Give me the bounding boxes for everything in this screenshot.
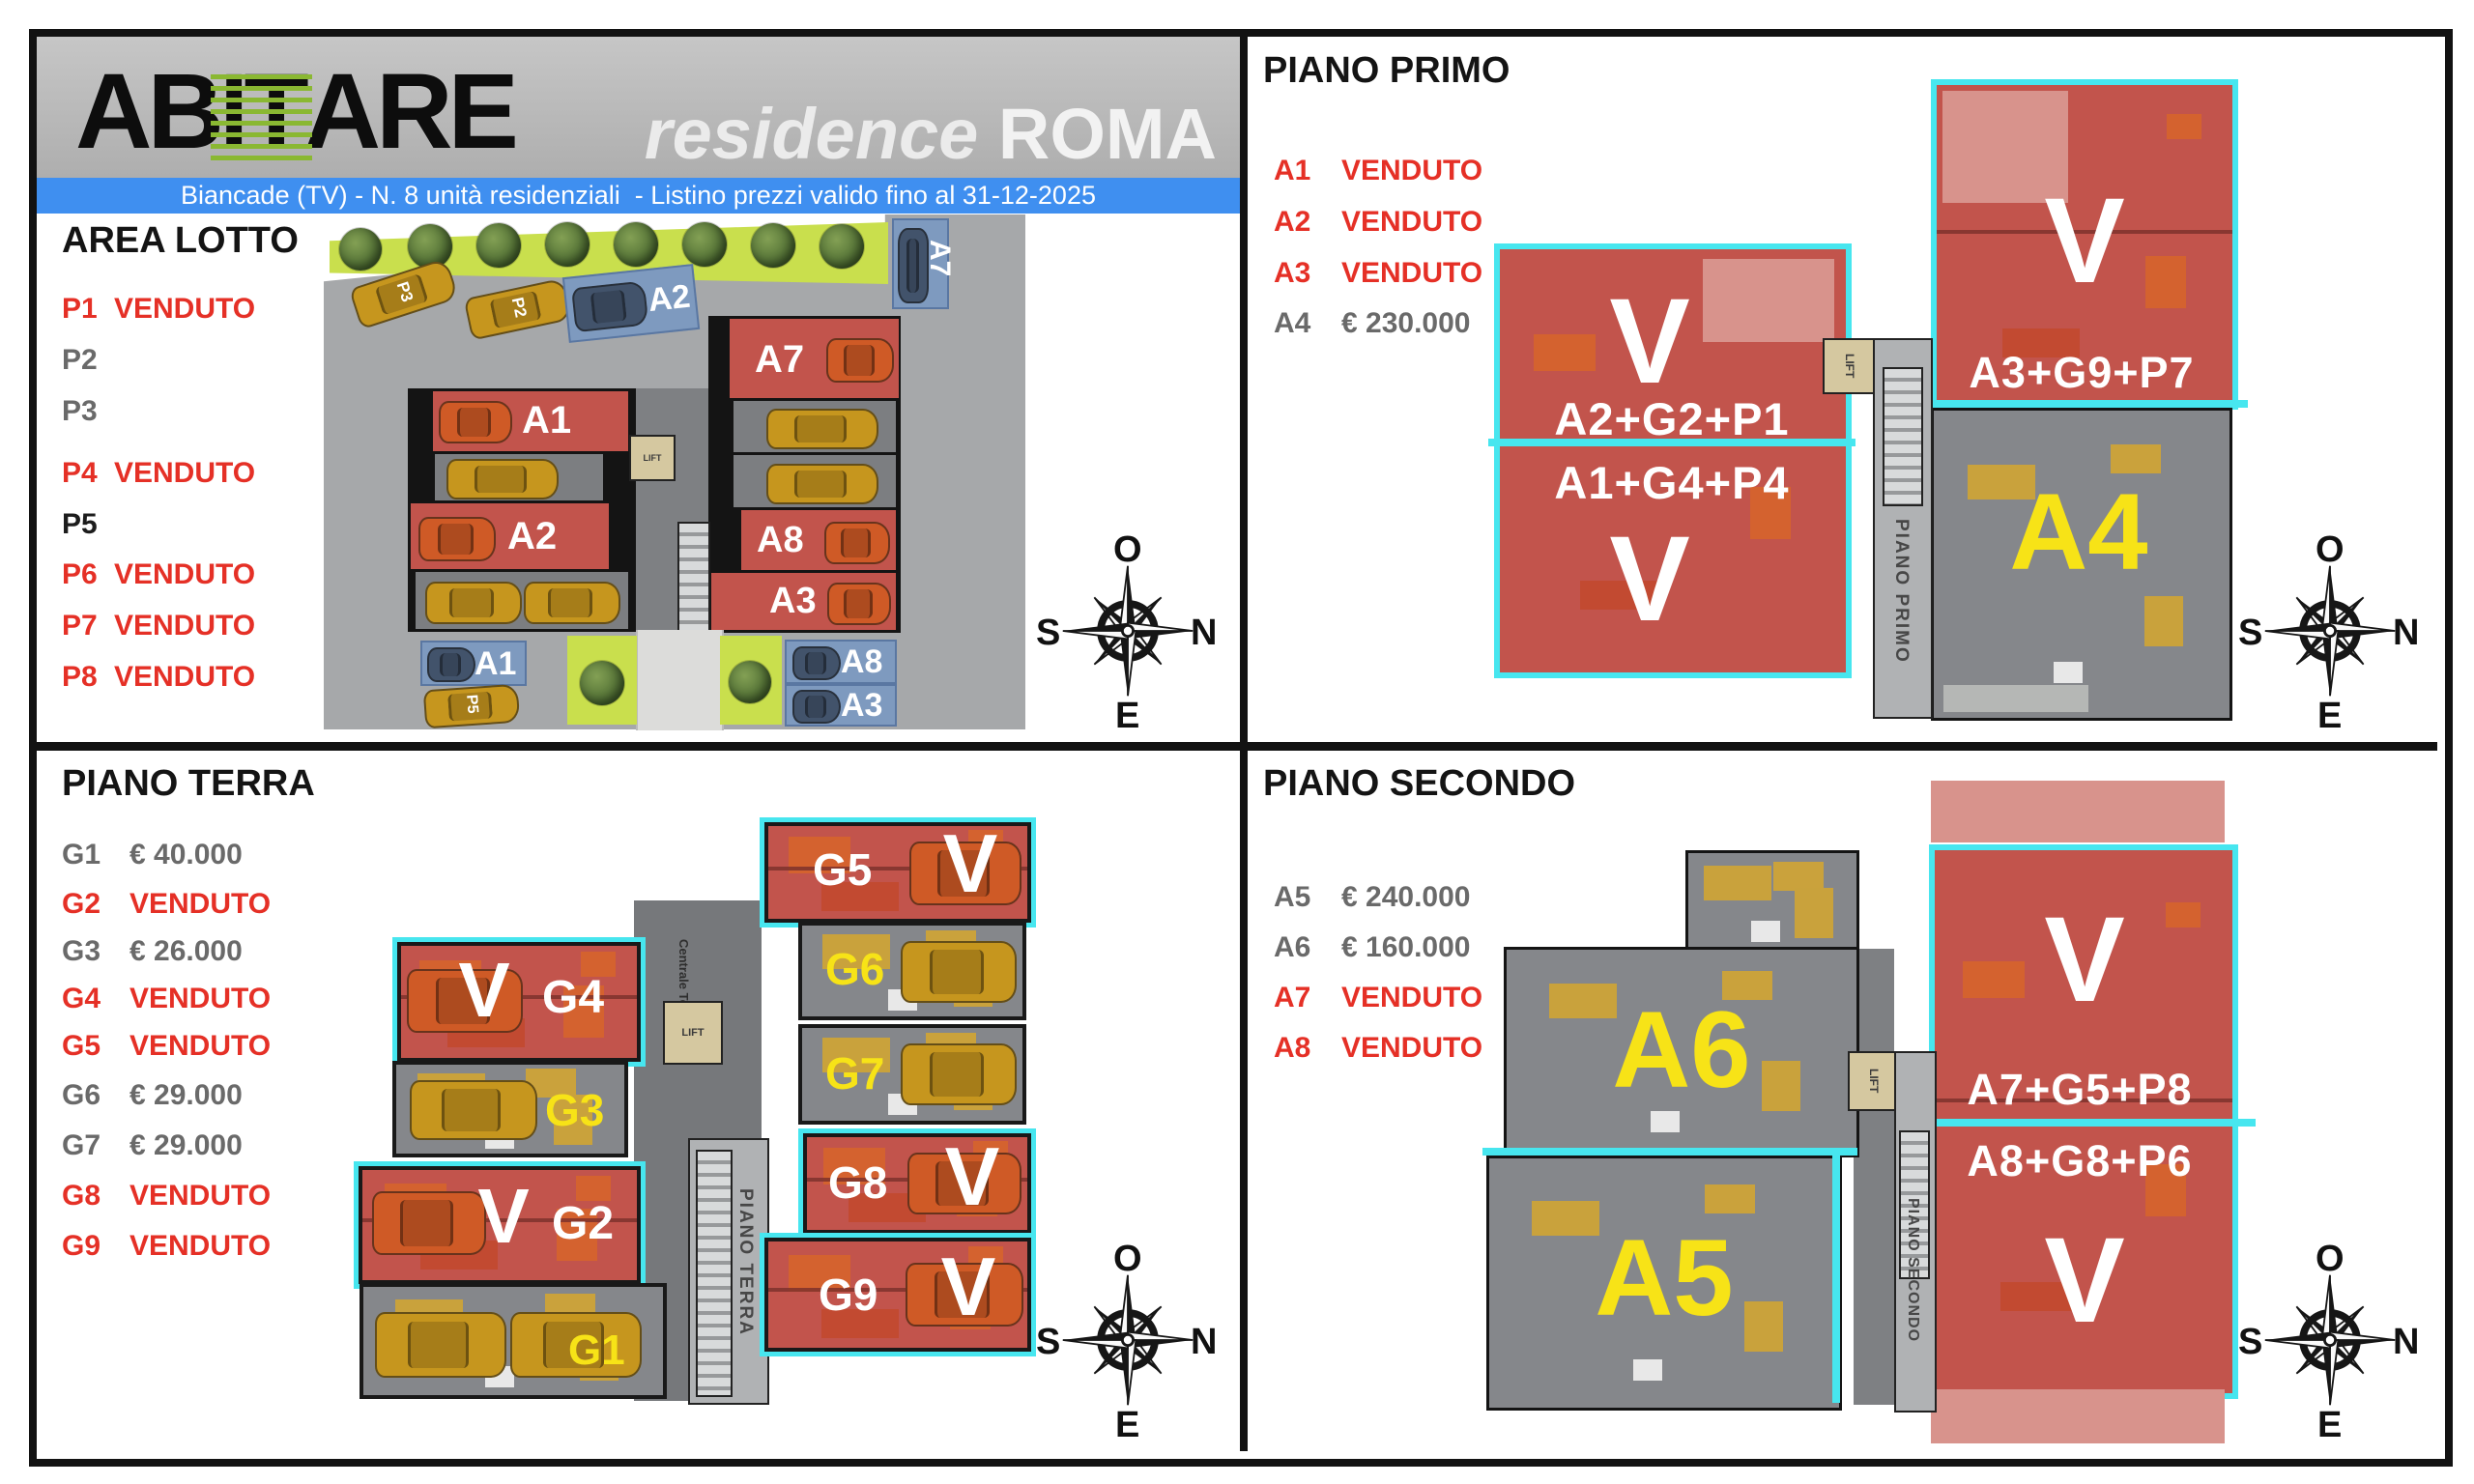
compass-rose-icon [2262, 1272, 2398, 1408]
combo-a3-g9-p7: A3+G9+P7 [1937, 348, 2227, 398]
row-g3: G3€ 26.000 [62, 935, 243, 968]
cyan-divider [1923, 400, 2248, 408]
garage-g6: G6 [798, 922, 1026, 1020]
row-p4: P4VENDUTO [62, 457, 255, 490]
residence-word: residence [645, 94, 998, 174]
car-icon [792, 690, 841, 724]
garage-label-g1: G1 [568, 1329, 625, 1372]
stairwell-label: PIANO PRIMO [1890, 519, 1912, 664]
lift: LIFT [663, 1001, 723, 1065]
unit-id: P6 [62, 558, 114, 591]
compass-south: S [1036, 1322, 1060, 1363]
sold-v-mark: V [917, 828, 1023, 902]
tree-icon [476, 223, 521, 268]
car-icon [826, 338, 894, 383]
location-banner: Biancade (TV) - N. 8 unità residenziali … [37, 178, 1240, 214]
row-a1: A1VENDUTO [1274, 155, 1482, 187]
unit-a8: A8 [741, 510, 896, 570]
sold-v-mark: V [2022, 906, 2147, 1015]
parking-label-a1: A1 [475, 645, 516, 683]
tree-icon [751, 223, 795, 268]
garage-g4: V G4 [392, 937, 646, 1067]
walkway [636, 630, 724, 730]
row-a8: A8VENDUTO [1274, 1032, 1482, 1065]
row-p2: P2 [62, 344, 114, 377]
unit-status: VENDUTO [114, 610, 255, 642]
stairwell: PIANO SECONDO [1894, 1051, 1937, 1413]
stairs [1883, 367, 1923, 506]
unit-status: € 29.000 [129, 1129, 243, 1162]
unit-label-a6: A6 [1507, 996, 1856, 1104]
garage-label-g3: G3 [545, 1088, 604, 1132]
lift-label: LIFT [1843, 354, 1856, 378]
roma-word: ROMA [998, 94, 1217, 174]
ps-right-apartments: V A7+G5+P8 A8+G8+P6 V [1929, 844, 2238, 1399]
sold-v-mark: V [436, 956, 532, 1025]
unit-status: VENDUTO [129, 888, 271, 921]
compass-east: E [2317, 696, 2342, 737]
row-p8: P8VENDUTO [62, 661, 255, 694]
car-label-p3: P3 [392, 279, 417, 304]
cyan-divider [1832, 1156, 1840, 1403]
row-g9: G9VENDUTO [62, 1230, 271, 1263]
unit-id: P8 [62, 661, 114, 694]
garage-row [435, 454, 603, 500]
garage-label-g8: G8 [828, 1160, 887, 1205]
garage-g1: G1 [360, 1283, 667, 1399]
garage-g8: G8 V [798, 1128, 1036, 1239]
row-a7: A7VENDUTO [1274, 982, 1482, 1014]
car-icon [766, 409, 878, 449]
piano-secondo-title: PIANO SECONDO [1263, 763, 1575, 805]
row-g1: G1€ 40.000 [62, 839, 243, 871]
tree-icon [580, 661, 624, 705]
parking-spot-a1: A1 [420, 641, 527, 686]
tree-icon [614, 222, 658, 267]
garage-g9: G9 V [760, 1233, 1036, 1356]
compass-north: N [1191, 613, 1217, 654]
sold-v-mark: V [1587, 526, 1712, 635]
car-icon [524, 582, 620, 624]
unit-status: VENDUTO [114, 457, 255, 490]
cyan-divider [1488, 439, 1855, 446]
tree-icon [729, 661, 771, 703]
unit-status: VENDUTO [1341, 206, 1482, 239]
garage-label-g5: G5 [813, 847, 872, 892]
car-icon [827, 583, 891, 625]
compass-west: O [1113, 529, 1142, 571]
stairs [677, 522, 710, 632]
unit-id: G3 [62, 935, 129, 968]
unit-id: P7 [62, 610, 114, 642]
tree-icon [682, 222, 727, 267]
unit-status: € 26.000 [129, 935, 243, 968]
pp-right-apartment-a3: V A3+G9+P7 [1931, 79, 2238, 410]
piano-primo-title: PIANO PRIMO [1263, 50, 1510, 92]
parking-spot-a8: A8 [785, 640, 897, 684]
row-a4: A4€ 230.000 [1274, 307, 1470, 340]
lift-label: LIFT [1867, 1069, 1881, 1093]
unit-status: VENDUTO [129, 983, 271, 1015]
compass-rose-icon [1060, 1272, 1195, 1408]
unit-label-a5: A5 [1489, 1224, 1839, 1332]
building-left-wing: A1 A2 [408, 388, 636, 632]
unit-label-a8: A8 [757, 522, 804, 558]
row-p6: P6VENDUTO [62, 558, 255, 591]
cyan-divider [1482, 1148, 1857, 1156]
unit-id: A6 [1274, 931, 1341, 964]
garage-label-g7: G7 [825, 1051, 884, 1096]
site-plan: A7 P3 P2 A2 AREA DI LOTTIZZAZIONE A1 A2 [324, 214, 1025, 729]
car-label-p5: P5 [462, 694, 480, 714]
unit-id: P4 [62, 457, 114, 490]
car-icon [446, 459, 559, 499]
tree-icon [339, 228, 382, 271]
unit-status: VENDUTO [1341, 982, 1482, 1014]
compass-west: O [2316, 529, 2345, 571]
parking-spot-a7: A7 [892, 218, 949, 309]
unit-id: A4 [1274, 307, 1341, 340]
row-p3: P3 [62, 395, 114, 428]
car-p5: P5 [423, 684, 521, 729]
unit-status: € 230.000 [1341, 307, 1470, 340]
garage-label-g9: G9 [819, 1272, 877, 1317]
compass-rose: O S N E [2238, 529, 2422, 732]
parking-label-a3: A3 [841, 687, 882, 725]
residence-title: residence ROMA [645, 93, 1217, 175]
unit-status: € 240.000 [1341, 881, 1470, 914]
compass-rose-icon [1060, 563, 1195, 699]
unit-status: € 160.000 [1341, 931, 1470, 964]
row-a2: A2VENDUTO [1274, 206, 1482, 239]
row-a3: A3VENDUTO [1274, 257, 1482, 290]
car-label-p2: P2 [507, 296, 531, 320]
loggia [1943, 685, 2088, 712]
stairwell: PIANO PRIMO [1873, 338, 1933, 719]
sold-v-mark: V [2022, 187, 2147, 297]
pp-apartment-a4: A4 [1931, 408, 2232, 721]
row-p5: P5 [62, 508, 114, 541]
unit-id: A3 [1274, 257, 1341, 290]
garage-row [416, 572, 628, 629]
unit-status: VENDUTO [129, 1180, 271, 1213]
combo-a7-g5-p8: A7+G5+P8 [1935, 1065, 2225, 1115]
compass-south: S [1036, 613, 1060, 654]
car-icon [427, 647, 475, 682]
parking-label-a8: A8 [841, 643, 882, 681]
unit-id: G4 [62, 983, 129, 1015]
header-bar: ABITARE residence ROMA [37, 37, 1240, 180]
compass-west: O [2316, 1239, 2345, 1280]
unit-a3: A3 [711, 573, 896, 630]
car-icon [824, 522, 890, 564]
unit-id: G6 [62, 1079, 129, 1112]
unit-label-a7: A7 [755, 340, 804, 379]
cyan-divider [1923, 1119, 2256, 1127]
car-icon [766, 464, 878, 504]
stairs [696, 1150, 733, 1397]
compass-east: E [2317, 1405, 2342, 1446]
stairwell: PIANO TERRA [688, 1138, 769, 1405]
garage-g2: V G2 [354, 1161, 646, 1289]
unit-id: P5 [62, 508, 114, 541]
unit-id: G8 [62, 1180, 129, 1213]
lift: LIFT [1823, 338, 1877, 394]
unit-status: VENDUTO [129, 1230, 271, 1263]
garage-g5: G5 V [760, 817, 1036, 927]
row-a5: A5€ 240.000 [1274, 881, 1470, 914]
pp-left-apartments: V A2+G2+P1 A1+G4+P4 V [1494, 243, 1852, 678]
unit-status: VENDUTO [129, 1030, 271, 1063]
unit-id: P3 [62, 395, 114, 428]
car-icon [418, 517, 496, 561]
unit-status: VENDUTO [1341, 257, 1482, 290]
loggia [1931, 1389, 2225, 1443]
parking-spot-a3: A3 [785, 684, 897, 727]
logo-ab: AB [75, 52, 219, 171]
ps-apartment-a5: A5 [1486, 1156, 1842, 1411]
unit-id: A5 [1274, 881, 1341, 914]
compass-north: N [1191, 1322, 1217, 1363]
compass-east: E [1115, 696, 1139, 737]
unit-a1: A1 [433, 391, 628, 451]
unit-label-a3: A3 [769, 583, 817, 619]
unit-id: G2 [62, 888, 129, 921]
unit-status: € 29.000 [129, 1079, 243, 1112]
area-lotto-title: AREA LOTTO [62, 220, 299, 262]
unit-id: A8 [1274, 1032, 1341, 1065]
ps-corridor [1854, 949, 1894, 1405]
unit-id: P2 [62, 344, 114, 377]
building-right-wing: A7 A8 A3 [708, 316, 901, 633]
combo-a2-g2-p1: A2+G2+P1 [1510, 392, 1834, 445]
row-a6: A6€ 160.000 [1274, 931, 1470, 964]
unit-id: A1 [1274, 155, 1341, 187]
car-icon [792, 646, 841, 680]
sold-v-mark: V [455, 1182, 552, 1251]
car-icon [425, 582, 522, 624]
car-icon [901, 1043, 1017, 1105]
unit-status: VENDUTO [1341, 155, 1482, 187]
unit-label-a2: A2 [507, 517, 557, 556]
unit-id: G5 [62, 1030, 129, 1063]
unit-status: VENDUTO [114, 558, 255, 591]
unit-id: A2 [1274, 206, 1341, 239]
ps-apartment-a6: A6 [1504, 947, 1859, 1157]
loggia [1703, 259, 1834, 342]
unit-label-a1: A1 [522, 401, 571, 440]
combo-a1-g4-p4: A1+G4+P4 [1510, 456, 1834, 509]
car-icon [410, 1080, 537, 1140]
row-g8: G8VENDUTO [62, 1180, 271, 1213]
parking-label-a7: A7 [923, 240, 956, 276]
loggia [1931, 781, 2225, 842]
garage-label-g2: G2 [552, 1201, 614, 1247]
unit-a2: A2 [411, 503, 609, 569]
lift: LIFT [629, 435, 676, 481]
unit-status: VENDUTO [114, 661, 255, 694]
abitare-logo: ABITARE [75, 50, 514, 173]
compass-rose: O S N E [1036, 1239, 1220, 1441]
unit-id: P1 [62, 293, 114, 326]
lift: LIFT [1848, 1051, 1900, 1111]
row-p1: P1VENDUTO [62, 293, 255, 326]
garage-g7: G7 [798, 1024, 1026, 1125]
compass-north: N [2393, 1322, 2419, 1363]
compass-rose: O S N E [2238, 1239, 2422, 1441]
compass-east: E [1115, 1405, 1139, 1446]
parking-label-a2: A2 [647, 278, 692, 320]
row-g4: G4VENDUTO [62, 983, 271, 1015]
combo-a8-g8-p6: A8+G8+P6 [1935, 1136, 2225, 1186]
unit-label-a4: A4 [1934, 478, 2224, 586]
horizontal-divider [37, 742, 2437, 751]
sold-v-mark: V [2022, 1227, 2147, 1336]
unit-status: € 40.000 [129, 839, 243, 871]
unit-a7: A7 [730, 319, 899, 398]
compass-north: N [2393, 613, 2419, 654]
unit-status: VENDUTO [1341, 1032, 1482, 1065]
unit-id: G9 [62, 1230, 129, 1263]
compass-south: S [2238, 1322, 2262, 1363]
unit-status: VENDUTO [114, 293, 255, 326]
sold-v-mark: V [915, 1251, 1021, 1326]
garage-row [734, 401, 896, 452]
compass-rose: O S N E [1036, 529, 1220, 732]
logo-are: ARE [304, 52, 514, 171]
price-list-sheet: ABITARE residence ROMA Biancade (TV) - N… [0, 0, 2474, 1484]
compass-rose-icon [2262, 563, 2398, 699]
tree-icon [545, 222, 590, 267]
compass-west: O [1113, 1239, 1142, 1280]
garage-g3: G3 [392, 1061, 628, 1157]
tree-icon [820, 224, 864, 269]
car-icon [901, 941, 1017, 1003]
compass-south: S [2238, 613, 2262, 654]
logo-it-striped: IT [219, 50, 304, 173]
sold-v-mark: V [919, 1141, 1025, 1215]
garage-row [734, 455, 896, 507]
car-icon [439, 401, 512, 443]
piano-terra-title: PIANO TERRA [62, 763, 315, 805]
sold-v-mark: V [1587, 288, 1712, 397]
row-g5: G5VENDUTO [62, 1030, 271, 1063]
row-p7: P7VENDUTO [62, 610, 255, 642]
stairwell-label: PIANO TERRA [734, 1188, 756, 1336]
unit-id: G1 [62, 839, 129, 871]
stairwell-label: PIANO SECONDO [1904, 1198, 1921, 1342]
garage-label-g4: G4 [542, 975, 604, 1021]
row-g6: G6€ 29.000 [62, 1079, 243, 1112]
row-g2: G2VENDUTO [62, 888, 271, 921]
car-icon [571, 280, 648, 332]
car-icon [375, 1312, 506, 1378]
parking-spot-a2: A2 [562, 264, 700, 343]
garage-label-g6: G6 [825, 947, 884, 991]
unit-id: A7 [1274, 982, 1341, 1014]
row-g7: G7€ 29.000 [62, 1129, 243, 1162]
unit-id: G7 [62, 1129, 129, 1162]
ps-upper-rooms [1685, 850, 1859, 955]
